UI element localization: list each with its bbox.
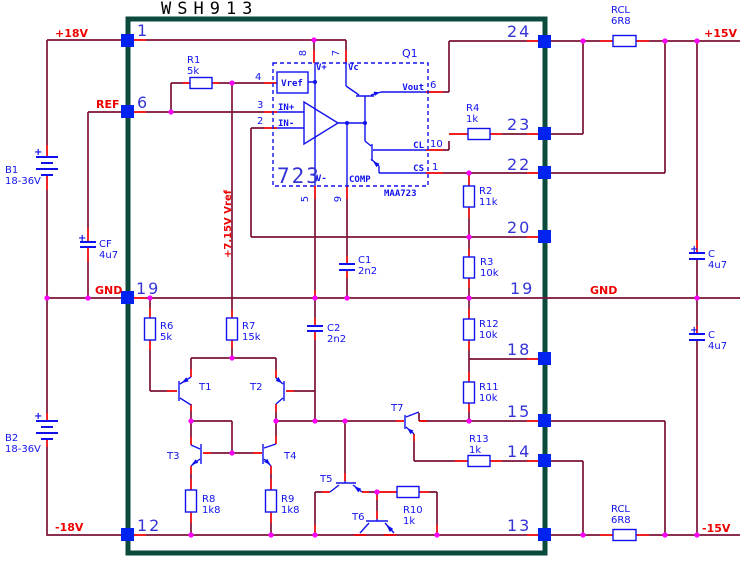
label-T2: T2 [249, 382, 262, 393]
ic-pin-num-1: 1 [432, 162, 438, 173]
label-R6-ref: R6 [160, 321, 173, 332]
resistor-R4 [468, 129, 490, 140]
plus-sign-C-bottom: + [690, 325, 698, 336]
resistor-R6 [145, 318, 156, 340]
ic-pin-num-7: 7 [331, 50, 342, 56]
label-R6-val: 5k [160, 332, 172, 343]
pin-number-13: 13 [507, 516, 531, 535]
resistor-RCL-bottom [613, 530, 636, 541]
ic-pin-num-2: 2 [257, 116, 263, 127]
ic-designator: Q1 [402, 47, 418, 60]
ic-pin-name-vref: Vref [281, 79, 303, 89]
ic-pin-name-cs: CS [413, 164, 424, 174]
label-C-bottom-ref: C [708, 330, 715, 341]
label-R8-ref: R8 [202, 494, 215, 505]
label-R4-val: 1k [466, 114, 478, 125]
pad-pin-24 [538, 35, 551, 48]
resistor-R13 [468, 456, 490, 467]
pad-pin-19-left [121, 291, 134, 304]
pin-number-12: 12 [137, 516, 161, 535]
net-label-plus18: +18V [55, 27, 89, 40]
label-T6: T6 [351, 512, 364, 523]
resistor-R7 [227, 318, 238, 340]
resistor-R3 [464, 257, 475, 278]
label-R9-val: 1k8 [281, 505, 300, 516]
net-label-minus15: -15V [702, 522, 731, 535]
plus-sign-B2: + [34, 411, 42, 422]
plus-sign-B1: + [34, 147, 42, 158]
capacitor-C2 [307, 326, 323, 331]
label-RCL-bottom-val: 6R8 [611, 515, 631, 526]
pin-number-18: 18 [507, 340, 531, 359]
pad-pin-1 [121, 34, 134, 47]
label-R11-val: 10k [479, 393, 498, 404]
pad-pin-23 [538, 127, 551, 140]
pin-number-15: 15 [507, 402, 531, 421]
label-R3-ref: R3 [480, 257, 493, 268]
label-C1-val: 2n2 [358, 266, 377, 277]
ic-pin-num-3: 3 [257, 100, 263, 111]
label-B2-val: 18-36V [5, 444, 41, 455]
schematic-canvas: WSH913 +18V REF GND -18V +15V GND -15V +… [0, 0, 747, 567]
schematic-page: WSH913 +18V REF GND -18V +15V GND -15V +… [0, 0, 747, 567]
label-CF-ref: CF [99, 239, 112, 250]
pad-pin-6 [121, 105, 134, 118]
net-label-minus18: -18V [55, 521, 84, 534]
label-R1-val: 5k [187, 66, 199, 77]
pad-pin-22 [538, 166, 551, 179]
label-C-top-ref: C [708, 249, 715, 260]
pad-pin-13 [538, 528, 551, 541]
ic-pin-num-4: 4 [255, 72, 261, 83]
label-T1: T1 [198, 382, 211, 393]
pin-number-20: 20 [507, 218, 531, 237]
resistor-R12 [464, 319, 475, 340]
label-R8-val: 1k8 [202, 505, 221, 516]
label-R1-ref: R1 [187, 55, 200, 66]
label-T4: T4 [283, 451, 296, 462]
ic-big-label: 723 [277, 164, 321, 188]
pin-number-6: 6 [137, 93, 149, 112]
label-R7-ref: R7 [242, 321, 255, 332]
plus-sign-C-top: + [690, 244, 698, 255]
capacitor-C1 [339, 264, 355, 270]
label-C-top-val: 4u7 [708, 260, 727, 271]
pin-number-22: 22 [507, 155, 531, 174]
ic-pin-num-9: 9 [333, 196, 344, 202]
ic-pin-name-vc: Vc [348, 63, 359, 73]
battery-B2 [36, 421, 58, 439]
label-R13-ref: R13 [469, 434, 489, 445]
ic-pin-num-10: 10 [430, 139, 443, 150]
resistor-R9 [266, 490, 277, 512]
label-C1-ref: C1 [358, 255, 371, 266]
plus-sign-CF: + [78, 233, 86, 244]
label-R12-val: 10k [479, 330, 498, 341]
pin-number-19-right: 19 [510, 279, 534, 298]
ic-pin-num-8: 8 [298, 50, 309, 56]
label-R10-val: 1k [403, 516, 415, 527]
pad-pin-15 [538, 414, 551, 427]
label-B1-val: 18-36V [5, 176, 41, 187]
label-R12-ref: R12 [479, 319, 499, 330]
label-R2-val: 11k [479, 197, 498, 208]
transistor-T6 [360, 519, 394, 533]
pad-pin-20 [538, 230, 551, 243]
ic-pin-name-comp: COMP [349, 175, 371, 185]
ic-pin-name-vplus: V+ [316, 63, 327, 73]
label-B1-ref: B1 [5, 165, 18, 176]
resistor-RCL-top [613, 36, 636, 47]
label-R13-val: 1k [469, 445, 481, 456]
label-C-bottom-val: 4u7 [708, 341, 727, 352]
ic-pin-num-5: 5 [300, 196, 311, 202]
pin-number-24: 24 [507, 22, 531, 41]
net-label-gnd-left: GND [95, 284, 122, 297]
label-B2-ref: B2 [5, 433, 18, 444]
net-label-ref: REF [96, 98, 120, 111]
page-title: WSH913 [161, 0, 258, 19]
label-R7-val: 15k [242, 332, 261, 343]
label-RCL-bottom-ref: RCL [611, 504, 630, 515]
label-R11-ref: R11 [479, 382, 499, 393]
ic-pin-name-cl: CL [413, 141, 424, 151]
label-C2-val: 2n2 [327, 334, 346, 345]
pin-number-1: 1 [137, 21, 149, 40]
label-RCL-top-val: 6R8 [611, 16, 631, 27]
battery-B1 [36, 157, 58, 175]
label-R4-ref: R4 [466, 103, 479, 114]
net-label-plus15: +15V [704, 27, 738, 40]
ic-pin-name-vminus: V- [316, 174, 327, 184]
label-T5: T5 [319, 474, 332, 485]
pin-number-23: 23 [507, 115, 531, 134]
label-CF-val: 4u7 [99, 250, 118, 261]
label-R2-ref: R2 [479, 186, 492, 197]
resistor-R1 [190, 78, 212, 89]
net-label-gnd-right: GND [590, 284, 617, 297]
ic-pin-name-vout: Vout [402, 83, 424, 93]
pin-number-19-left: 19 [136, 279, 160, 298]
resistor-R10 [397, 487, 419, 498]
ic-pin-num-6: 6 [430, 80, 436, 91]
transistor-arrows [182, 92, 414, 532]
label-RCL-top-ref: RCL [611, 5, 630, 16]
resistor-R2 [464, 186, 475, 207]
net-label-vref-rail: +7.15V Vref [223, 189, 234, 258]
label-T3: T3 [166, 451, 179, 462]
ic-pin-name-inplus: IN+ [278, 103, 295, 113]
transistor-T4 [263, 444, 276, 466]
pin-number-14: 14 [507, 442, 531, 461]
ic-part-number: MAA723 [384, 189, 417, 199]
label-R10-ref: R10 [403, 505, 423, 516]
label-T7: T7 [390, 403, 403, 414]
pad-pin-18 [538, 352, 551, 365]
pad-pin-14 [538, 454, 551, 467]
label-R3-val: 10k [480, 268, 499, 279]
pad-pin-12 [121, 528, 134, 541]
label-R9-ref: R9 [281, 494, 294, 505]
ic-pin-name-inminus: IN- [278, 119, 294, 129]
resistor-R11 [464, 382, 475, 403]
label-C2-ref: C2 [327, 323, 340, 334]
opamp-triangle [304, 102, 338, 144]
resistor-R8 [186, 490, 197, 512]
